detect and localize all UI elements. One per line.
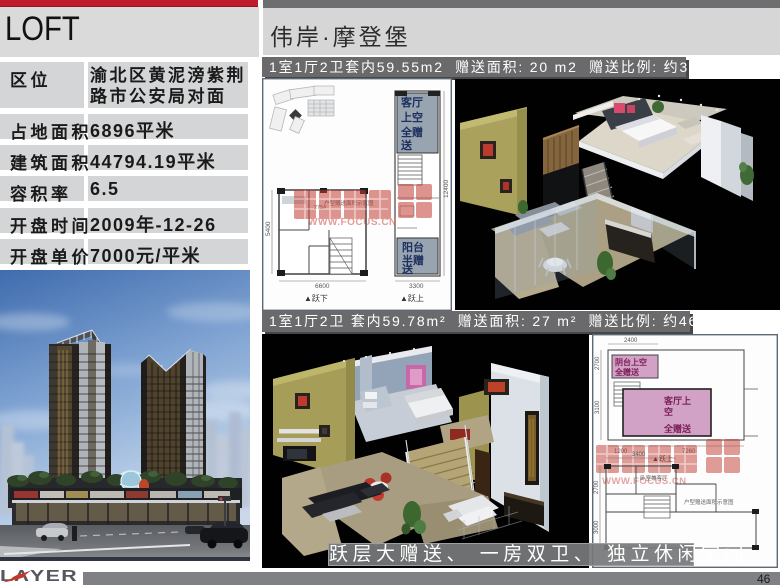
svg-text:空: 空 xyxy=(664,406,673,417)
svg-text:▲跃下: ▲跃下 xyxy=(304,294,328,303)
svg-text:3400: 3400 xyxy=(632,452,646,458)
svg-text:全赠: 全赠 xyxy=(400,125,423,139)
svg-text:12400: 12400 xyxy=(443,180,450,198)
svg-text:3300: 3300 xyxy=(409,283,424,290)
svg-text:▲跃上: ▲跃上 xyxy=(400,294,424,303)
svg-text:2700: 2700 xyxy=(594,480,600,494)
svg-text:LΛYER: LΛYER xyxy=(0,568,78,585)
svg-text:3000: 3000 xyxy=(594,520,600,534)
svg-text:送: 送 xyxy=(401,262,414,276)
svg-text:阴台上空: 阴台上空 xyxy=(615,357,647,367)
svg-text:客厅上: 客厅上 xyxy=(663,395,691,406)
svg-text:全赠送: 全赠送 xyxy=(614,367,640,377)
svg-text:6600: 6600 xyxy=(315,283,330,290)
svg-text:上空: 上空 xyxy=(401,110,423,124)
svg-text:5400: 5400 xyxy=(265,221,272,236)
svg-text:2400: 2400 xyxy=(624,338,638,344)
svg-text:3100: 3100 xyxy=(595,400,601,414)
svg-text:送: 送 xyxy=(400,138,413,152)
svg-text:客厅: 客厅 xyxy=(400,95,423,109)
svg-text:卧室兼客厅: 卧室兼客厅 xyxy=(640,474,668,482)
svg-text:WWW.FOCUS.CN: WWW.FOCUS.CN xyxy=(308,217,397,228)
svg-text:全赠送: 全赠送 xyxy=(663,423,692,434)
svg-text:2700: 2700 xyxy=(595,356,601,370)
svg-text:阳台: 阳台 xyxy=(402,240,424,254)
svg-text:户型赠送面积示意图: 户型赠送面积示意图 xyxy=(684,498,734,506)
